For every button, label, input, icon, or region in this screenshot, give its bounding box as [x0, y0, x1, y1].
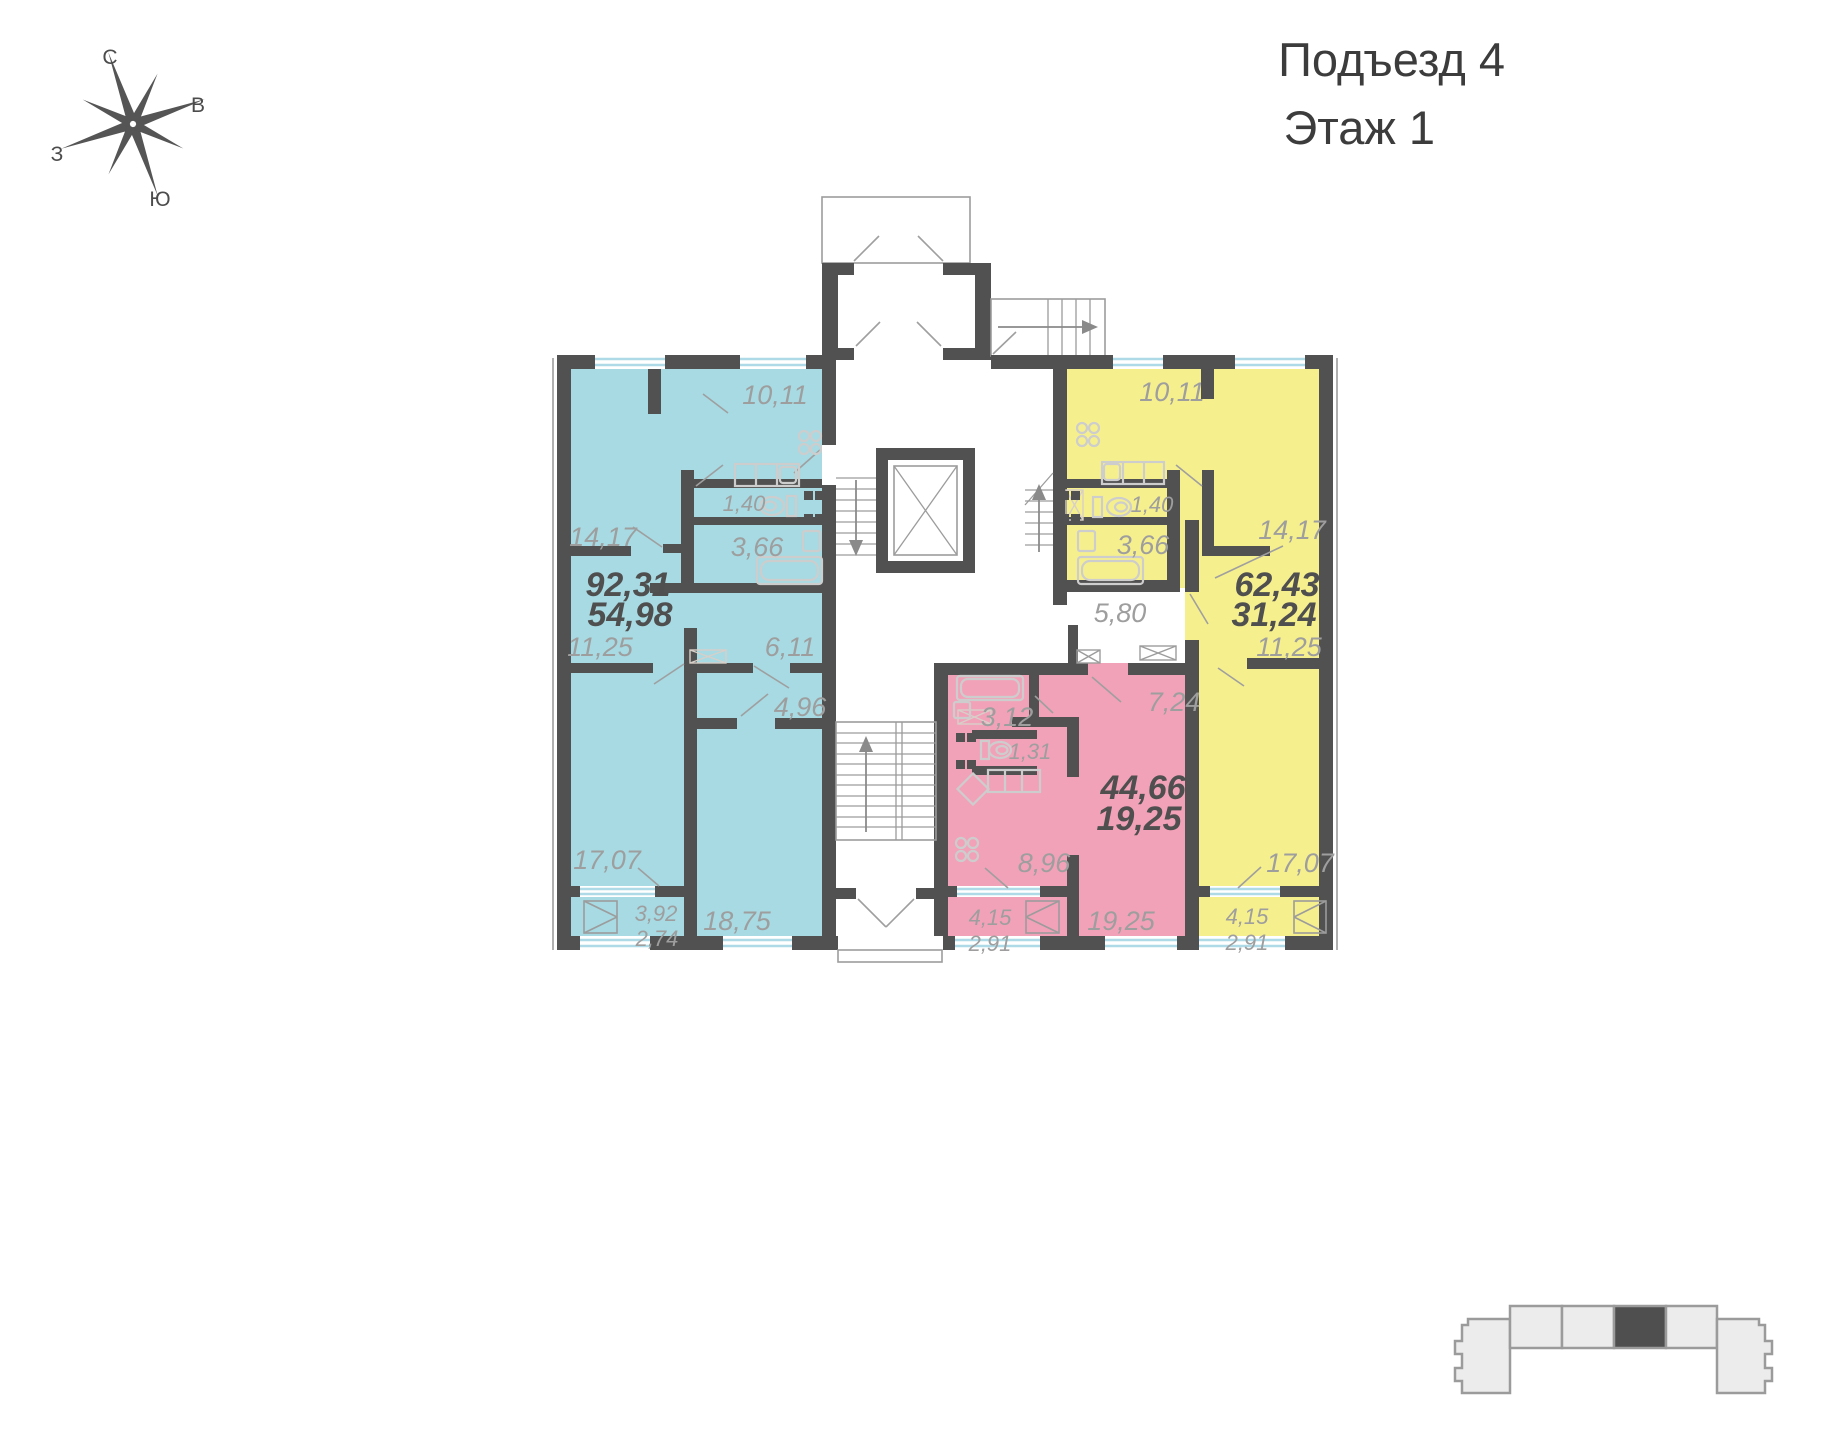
building-section-4-highlighted[interactable]	[1614, 1306, 1666, 1348]
area-label-apt-right-kitchen: 10,11	[1139, 377, 1205, 407]
building-section-6[interactable]	[1717, 1319, 1772, 1393]
area-label-apt-center-room: 19,25	[1087, 906, 1156, 936]
area-label-apt-left-room-3: 17,07	[573, 845, 642, 875]
area-label-apt-center-hall: 7,24	[1148, 687, 1201, 717]
elevator	[894, 466, 957, 555]
building-overview	[1455, 1306, 1772, 1393]
area-label-apt-left-bath: 3,66	[731, 532, 785, 562]
area-label-apt-left-room-2: 11,25	[567, 632, 634, 662]
area-label-apt-center-wc: 1,31	[1009, 739, 1052, 764]
stair-upper-left	[836, 478, 876, 556]
entrance-porch	[822, 197, 970, 263]
area-label-apt-right-balcony-a: 4,15	[1226, 904, 1270, 929]
entry-stair	[991, 299, 1105, 356]
building-section-3[interactable]	[1562, 1306, 1614, 1348]
compass-east-label: В	[191, 94, 205, 117]
area-label-apt-right-bath: 3,66	[1117, 530, 1171, 560]
stair-lower	[836, 722, 936, 840]
area-label-apt-right-room-1: 14,17	[1258, 515, 1327, 545]
area-label-apt-center-kitchen: 8,96	[1018, 848, 1072, 878]
compass-north-label: С	[102, 46, 117, 69]
area-label-apt-left-room-4: 18,75	[703, 906, 772, 936]
area-label-apt-left-living: 54,98	[587, 596, 672, 634]
area-label-apt-center-living: 19,25	[1096, 800, 1182, 838]
area-label-apt-center-bath: 3,12	[981, 702, 1034, 732]
page-title-floor: Этаж 1	[1283, 101, 1435, 154]
area-label-apt-center-balcony-b: 2,91	[968, 931, 1012, 956]
area-label-apt-left-kitchen: 10,11	[742, 380, 808, 410]
stair-upper-right	[1025, 473, 1053, 552]
building-section-2[interactable]	[1510, 1306, 1562, 1348]
area-label-apt-left-room-1: 14,17	[569, 522, 638, 552]
area-label-apt-right-balcony-b: 2,91	[1225, 930, 1269, 955]
area-label-apt-right-wc: 1,40	[1131, 492, 1175, 517]
floorplan-page: С В З Ю Подъезд 4 Этаж 1	[0, 0, 1835, 1431]
exit-porch	[838, 950, 942, 962]
vestibule-walls	[822, 263, 991, 360]
area-label-apt-right-room-3: 17,07	[1266, 848, 1335, 878]
building-section-5[interactable]	[1666, 1306, 1717, 1348]
area-label-apt-right-room-2: 11,25	[1256, 632, 1323, 662]
area-label-common-corridor: 5,80	[1094, 598, 1147, 628]
area-label-apt-left-hall-1: 6,11	[765, 632, 816, 662]
area-label-apt-left-wc: 1,40	[723, 491, 767, 516]
building-section-1[interactable]	[1455, 1319, 1510, 1393]
area-label-apt-right-living: 31,24	[1231, 596, 1316, 634]
area-label-apt-left-hall-2: 4,96	[774, 692, 828, 722]
area-label-apt-left-balcony-b: 2,74	[635, 926, 679, 951]
compass-rose: С В З Ю	[36, 27, 229, 220]
compass-west-label: З	[51, 143, 64, 166]
area-label-apt-left-balcony-a: 3,92	[635, 901, 678, 926]
area-label-apt-center-balcony-a: 4,15	[969, 905, 1013, 930]
page-title-entrance: Подъезд 4	[1278, 33, 1505, 86]
compass-south-label: Ю	[149, 188, 170, 211]
